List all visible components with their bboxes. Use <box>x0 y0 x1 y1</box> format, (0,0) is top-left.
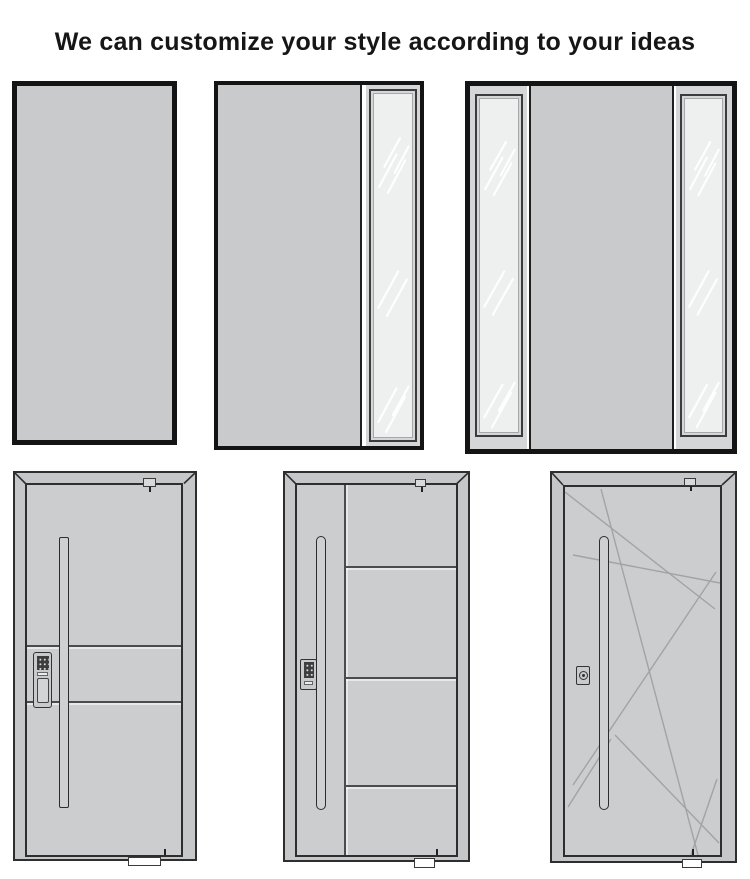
latch-mark <box>149 487 151 492</box>
door-closer-tab <box>684 478 696 486</box>
glass-sidelight-left <box>470 86 527 449</box>
latch-mark <box>421 487 423 492</box>
lock-display <box>37 672 48 676</box>
door-closer-tab <box>143 478 156 487</box>
stile-line <box>344 485 346 855</box>
keypad-icon <box>304 662 314 678</box>
latch-mark <box>692 849 694 855</box>
page-title: We can customize your style according to… <box>0 28 750 57</box>
door-design-stile-grooves <box>283 471 470 862</box>
latch-mark <box>164 849 166 855</box>
cylinder-lock <box>576 666 590 685</box>
glass-sidelight-right <box>366 85 420 446</box>
keyhole-icon <box>579 671 588 680</box>
door-leaf <box>25 483 183 857</box>
door-config-right-sidelight <box>214 81 424 450</box>
door-config-double-sidelight <box>465 81 737 454</box>
glass-frame <box>369 89 417 442</box>
glass-pane <box>479 98 519 433</box>
door-slab <box>218 85 362 446</box>
door-config-solid-panel <box>12 81 177 445</box>
lock-display <box>304 681 313 685</box>
glass-frame <box>680 94 727 437</box>
groove-line <box>346 677 456 679</box>
door-leaf <box>563 485 722 857</box>
glass-reflection-icon <box>685 99 722 432</box>
keypad-lock <box>33 652 52 708</box>
door-handle <box>599 536 609 810</box>
keypad-icon <box>37 656 49 670</box>
glass-pane <box>684 98 723 433</box>
door-handle <box>316 536 326 810</box>
glass-reflection-icon <box>374 94 412 437</box>
groove-line <box>346 566 456 568</box>
door-design-horizontal-grooves <box>13 471 197 861</box>
door-design-abstract-lines <box>550 471 737 863</box>
groove-line <box>27 645 181 647</box>
lock-lever <box>37 678 49 703</box>
glass-sidelight-right <box>676 86 732 449</box>
door-closer-tab <box>415 479 426 487</box>
door-handle <box>59 537 69 808</box>
latch-mark <box>436 849 438 855</box>
latch-mark <box>690 486 692 491</box>
door-slab <box>529 86 674 449</box>
glass-pane <box>373 93 413 438</box>
threshold-tab <box>128 857 161 866</box>
door-customization-graphic: We can customize your style according to… <box>0 0 750 879</box>
threshold-tab <box>414 858 435 868</box>
glass-frame <box>475 94 523 437</box>
groove-line <box>346 785 456 787</box>
threshold-tab <box>682 859 702 868</box>
keypad-lock <box>300 659 317 690</box>
door-leaf <box>295 483 458 857</box>
glass-reflection-icon <box>480 99 518 432</box>
